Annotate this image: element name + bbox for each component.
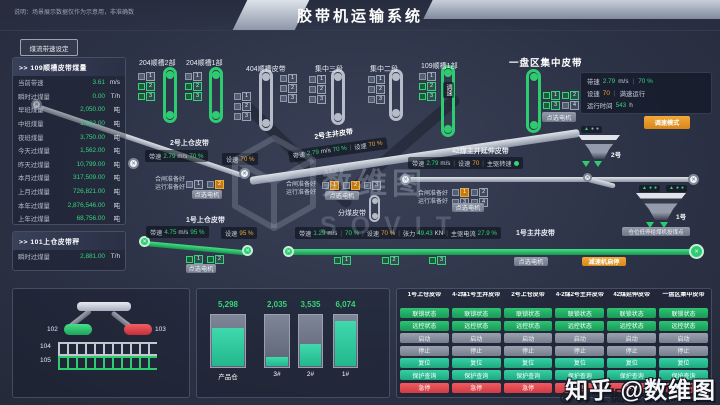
motor-tags: 123 [138, 72, 155, 100]
motor-icon [368, 96, 375, 103]
corner-watermark: 知乎 @数维图 [565, 371, 716, 405]
motor-tags: 123 [185, 72, 202, 100]
conveyor-104-label: 104 [40, 343, 51, 350]
motor-tag: 2 [185, 82, 202, 90]
motor-tag: 2 [207, 180, 224, 188]
speed-regulation-tag: 调速 [443, 82, 454, 98]
level-dot-icon: ● [591, 127, 594, 132]
belt-speed-row: 带速2.79 m/s70 % [587, 77, 705, 86]
row-unit: T/h [105, 93, 120, 100]
pulley-icon [400, 174, 411, 185]
hopper-2-level-indicators: ▲ ● ● [581, 126, 602, 133]
row-value: 68,756.00 [77, 215, 105, 222]
motor-tag-number: 2 [242, 102, 251, 111]
control-column-title: 42煤延伸皮带 [607, 292, 656, 306]
motor-icon [364, 182, 371, 189]
control-button[interactable]: 远控状态 [452, 321, 501, 331]
belt-speed-chip: 带速4.75 m/s95 % [146, 226, 209, 238]
control-button[interactable]: 联锁状态 [400, 308, 449, 318]
control-button[interactable]: 复位 [555, 358, 604, 368]
motor-tags: 12 [186, 180, 224, 188]
control-button[interactable]: 启动 [400, 333, 449, 343]
silo-label: 2# [298, 371, 323, 378]
motor-tag-number: 3 [288, 94, 297, 103]
row-label: 本年过煤量 [18, 201, 50, 210]
control-button[interactable]: 远控状态 [400, 321, 449, 331]
belt-label: 109顺槽1部 [421, 61, 458, 71]
motor-icon [138, 83, 145, 90]
motor-tag-number: 1 [330, 181, 339, 190]
data-row: 上年过煤量68,756.00吨 [13, 212, 125, 226]
control-button[interactable]: 停止 [504, 346, 553, 356]
belt-label: 1号上仓皮带 [186, 215, 225, 225]
conveyor-1-main-line [288, 249, 696, 255]
motor-tags: 123 [280, 74, 297, 102]
motor-tag-number: 1 [194, 180, 203, 189]
level-dot-icon: ● [596, 127, 599, 132]
row-unit: 吨 [105, 146, 120, 155]
conveyor-2-main-group: 2号主井皮带 带速2.79 m/s70 % 设速70 % [286, 122, 388, 163]
belt-label: 42煤主井延伸皮带 [452, 146, 509, 156]
control-button[interactable]: 联锁状态 [659, 308, 708, 318]
chute-103-label: 103 [155, 326, 166, 333]
motor-tag-number: 2 [215, 180, 224, 189]
control-button[interactable]: 启动 [452, 333, 501, 343]
belt-label: 204顺槽1部 [186, 58, 223, 68]
low-level-stop-feeder-button[interactable]: 仓位低停给煤机投煤点 [622, 227, 690, 236]
select-motor-button[interactable]: 点选电机 [514, 257, 548, 266]
row-unit: 吨 [105, 119, 120, 128]
motor-icon [185, 93, 192, 100]
motor-tag-number: 1 [146, 72, 155, 81]
data-row: 昨天过煤量10,799.00吨 [13, 158, 125, 172]
motor-tag-number: 1 [460, 188, 469, 197]
motor-tag-number: 1 [193, 72, 202, 81]
row-unit: 吨 [105, 214, 120, 223]
motor-tag-number: 2 [215, 255, 224, 264]
motor-tag-number: 1 [551, 91, 560, 100]
belt-109-1[interactable] [441, 65, 455, 137]
pulley-icon [688, 174, 699, 185]
control-button[interactable]: 停止 [452, 346, 501, 356]
motor-tag: 2 [471, 188, 488, 196]
control-column: 2号上仓皮带联锁状态远控状态启动停止复位保护查询急停 [504, 292, 553, 394]
motor-icon [334, 257, 341, 264]
splitter-belt-label: 分煤皮带 [338, 208, 366, 218]
motor-tag-number: 1 [242, 92, 251, 101]
motor-tag: 3 [543, 101, 560, 109]
motor-tag: 3 [185, 92, 202, 100]
row-unit: 吨 [105, 173, 120, 182]
motor-tag: 1 [322, 181, 339, 189]
chute-102-status[interactable] [64, 324, 92, 335]
motor-icon [309, 96, 316, 103]
control-button[interactable]: 启动 [659, 333, 708, 343]
motor-icon [186, 181, 193, 188]
control-button[interactable]: 急停 [400, 383, 449, 393]
motor-tag: 3 [419, 92, 436, 100]
motor-tag: 1 [334, 256, 351, 264]
panel-title: >> 101上仓皮带秤 [13, 232, 125, 250]
level-dot-icon: ● [654, 186, 657, 191]
belt-label: 集中三段 [315, 64, 343, 74]
data-row: 中班煤量1,662.00吨 [13, 117, 125, 131]
belt-404[interactable] [259, 69, 273, 131]
control-button[interactable]: 停止 [555, 346, 604, 356]
motor-tags: 1234 [543, 91, 581, 109]
motor-icon [186, 256, 193, 263]
belt-label: 2号上仓皮带 [170, 138, 209, 148]
motor-tag: 2 [419, 82, 436, 90]
control-button[interactable]: 远控状态 [659, 321, 708, 331]
silo-label: 1# [333, 371, 358, 378]
motor-tag: 3 [429, 256, 446, 264]
motor-tag: 3 [234, 112, 251, 120]
silo-fill [212, 328, 244, 366]
control-button[interactable]: 停止 [659, 346, 708, 356]
control-button[interactable]: 启动 [504, 333, 553, 343]
control-button[interactable]: 复位 [607, 358, 656, 368]
motor-icon [382, 257, 389, 264]
belt-label: 1号主井皮带 [516, 228, 555, 238]
select-motor-button[interactable]: 点选电机 [452, 203, 484, 212]
silo-label: 产品仓 [210, 371, 246, 381]
silo-bar [210, 314, 246, 368]
runtime-row: 运行时间543 h [587, 101, 705, 110]
chute-triangle-icon [582, 161, 590, 167]
silo-fill [300, 344, 321, 366]
silo-fill [266, 357, 288, 366]
control-button[interactable]: 急停 [452, 383, 501, 393]
row-label: 夜班煤量 [18, 133, 44, 142]
motor-tag: 3 [364, 181, 381, 189]
motor-icon [343, 182, 350, 189]
motor-tag-number: 1 [342, 256, 351, 265]
motor-tag-number: 1 [288, 74, 297, 83]
distributor-head [77, 302, 131, 311]
motor-tag-number: 3 [551, 101, 560, 110]
select-motor-button[interactable]: 点选电机 [192, 190, 222, 199]
drive-status-dot [514, 161, 519, 166]
row-label: 瞬时过煤量 [18, 92, 50, 101]
motor-tag-number: 2 [570, 91, 579, 100]
silo-bar [333, 314, 358, 368]
motor-tag: 1 [543, 91, 560, 99]
set-speed-chip: 设速95 % [221, 227, 257, 239]
set-speed-row: 设速70 满速运行 [587, 89, 705, 98]
row-value: 2,050.00 [80, 106, 105, 113]
belt-label: 404顺槽皮带 [246, 64, 286, 74]
row-value: 0.00 [93, 93, 105, 100]
motor-icon [207, 181, 214, 188]
motor-icon [368, 86, 375, 93]
motor-icon [309, 86, 316, 93]
motor-tags: 123 [322, 181, 381, 189]
conveyor-105-label: 105 [40, 357, 51, 364]
motor-tags: 123 [309, 75, 326, 103]
motor-icon [280, 75, 287, 82]
silo-value: 5,298 [210, 300, 246, 309]
motor-icon [419, 83, 426, 90]
level-triangle-icon: ▲ [584, 127, 589, 132]
row-label: 上月过煤量 [18, 187, 50, 196]
motor-tag-number: 2 [288, 84, 297, 93]
motor-tag: 2 [368, 85, 385, 93]
motor-icon [207, 256, 214, 263]
control-button[interactable]: 联锁状态 [555, 308, 604, 318]
motor-tag: 4 [562, 101, 579, 109]
motor-icon [562, 92, 569, 99]
motor-icon [185, 83, 192, 90]
panel-title: >> 109顺槽皮带煤量 [13, 58, 125, 76]
pulley-icon [689, 244, 704, 259]
row-unit: 吨 [105, 201, 120, 210]
motor-tag-number: 1 [376, 75, 385, 84]
chute-102-label: 102 [47, 326, 58, 333]
chute-triangle-icon [594, 161, 602, 167]
motor-tag: 1 [419, 72, 436, 80]
motor-tag-number: 2 [193, 82, 202, 91]
motor-tag-number: 2 [479, 188, 488, 197]
gearbox-start-stop-button[interactable]: 减速机启停 [582, 257, 626, 266]
control-button[interactable]: 保护查询 [452, 370, 501, 380]
conveyor-105[interactable] [58, 356, 157, 370]
pan-belt-info-panel: 带速2.79 m/s70 % 设速70 满速运行 运行时间543 h [580, 72, 712, 114]
motor-icon [234, 93, 241, 100]
silo-bar [264, 314, 290, 368]
motor-icon [234, 113, 241, 120]
pulley-icon [242, 245, 253, 256]
control-column-title: 一盘区集中皮带 [659, 292, 708, 306]
hopper-2-label: 2号 [611, 149, 621, 159]
motor-tag-number: 1 [194, 255, 203, 264]
motor-tag-number: 2 [376, 85, 385, 94]
row-value: 317,509.00 [73, 174, 105, 181]
data-row: 早班煤量2,050.00吨 [13, 103, 125, 117]
row-value: 726,821.00 [73, 188, 105, 195]
motor-icon [322, 182, 329, 189]
motor-tag: 2 [562, 91, 579, 99]
motor-tag: 2 [138, 82, 155, 90]
motor-tag-number: 2 [390, 256, 399, 265]
data-row: 夜班煤量3,750.00吨 [13, 130, 125, 144]
belt-label: 204顺槽2部 [139, 58, 176, 68]
row-label: 上年过煤量 [18, 214, 50, 223]
silo-bar [298, 314, 323, 368]
control-button[interactable]: 复位 [504, 358, 553, 368]
select-motor-button[interactable]: 点选电机 [325, 191, 359, 200]
motor-tags: 12 [186, 255, 224, 263]
control-button[interactable]: 停止 [400, 346, 449, 356]
motor-tags: 123 [334, 256, 446, 264]
pan-belt-title: 一盘区集中皮带 [509, 55, 583, 69]
motor-icon [562, 102, 569, 109]
control-button[interactable]: 停止 [607, 346, 656, 356]
motor-icon [419, 73, 426, 80]
motor-icon [368, 76, 375, 83]
motor-tag-number: 3 [242, 112, 251, 121]
panel-rows: 当前带速3.61m/s瞬时过煤量0.00T/h早班煤量2,050.00吨中班煤量… [13, 76, 125, 226]
belt-label: 集中二段 [370, 64, 398, 74]
motor-tag: 1 [138, 72, 155, 80]
ready-text: 运行准备好 [286, 187, 316, 196]
motor-tag: 2 [382, 256, 399, 264]
control-button[interactable]: 远控状态 [607, 321, 656, 331]
silo-label: 3# [264, 371, 290, 378]
belt-204-1[interactable] [209, 67, 223, 123]
conveyor-1-upper-line [145, 241, 249, 256]
motor-tag: 1 [368, 75, 385, 83]
control-button[interactable]: 联锁状态 [607, 308, 656, 318]
control-button[interactable]: 复位 [659, 358, 708, 368]
header-bar: 说明：场景展示数据仅作为示意用，非准确数 胶带机运输系统 [0, 0, 720, 31]
motor-icon [419, 93, 426, 100]
level-dot-icon: ● [681, 186, 684, 191]
row-label: 昨天过煤量 [18, 160, 50, 169]
motor-icon [280, 85, 287, 92]
motor-tag: 2 [280, 84, 297, 92]
ready-text: 运行准备好 [418, 196, 448, 205]
row-label: 瞬时过煤量 [18, 252, 50, 261]
select-motor-button[interactable]: 点选电机 [542, 112, 576, 122]
control-button[interactable]: 保护查询 [400, 370, 449, 380]
control-button[interactable]: 联锁状态 [504, 308, 553, 318]
data-row: 本月过煤量317,509.00吨 [13, 171, 125, 185]
pulley-icon [583, 173, 592, 182]
row-value: 10,799.00 [77, 161, 105, 168]
motor-tag: 2 [309, 85, 326, 93]
motor-tag: 3 [138, 92, 155, 100]
hopper-1-label: 1号 [676, 211, 686, 221]
motor-tag-number: 1 [317, 75, 326, 84]
set-speed-chip: 设速70 % [222, 153, 258, 165]
motor-tags: 123 [368, 75, 385, 103]
control-button[interactable]: 急停 [504, 383, 553, 393]
select-motor-button[interactable]: 点选电机 [186, 264, 216, 273]
data-row: 当前带速3.61m/s [13, 76, 125, 90]
belt-central-3[interactable] [331, 69, 345, 125]
conveyor-42-line [406, 177, 696, 182]
silo-value: 6,074 [333, 300, 358, 309]
motor-tag-number: 3 [317, 95, 326, 104]
conveyor-104[interactable] [58, 342, 157, 356]
row-value: 1,562.00 [80, 147, 105, 154]
motor-tag: 1 [186, 255, 203, 263]
splitter-belt[interactable] [369, 195, 380, 222]
control-column-title: 4-2煤1号主井皮带 [452, 292, 501, 306]
motor-tag-number: 2 [146, 82, 155, 91]
motor-tag-number: 3 [427, 92, 436, 101]
pulley-icon [283, 246, 294, 257]
row-value: 2,881.00 [80, 253, 105, 260]
ready-text: 运行准备好 [155, 182, 185, 191]
data-row: 本年过煤量2,876,546.00吨 [13, 198, 125, 212]
silo-value: 3,535 [298, 300, 323, 309]
row-value: 2,876,546.00 [68, 202, 105, 209]
speed-mode-button[interactable]: 调速模式 [644, 116, 690, 129]
motor-tag-number: 2 [351, 181, 360, 190]
motor-tag: 1 [234, 92, 251, 100]
motor-tag-number: 3 [193, 92, 202, 101]
control-button[interactable]: 联锁状态 [452, 308, 501, 318]
belt-speed-chip: 带速1.29 m/s70 % 设速70 % 张力49.43 KN 主驱电流27.… [295, 227, 501, 239]
motor-icon [543, 92, 550, 99]
motor-icon [429, 257, 436, 264]
motor-tag: 1 [309, 75, 326, 83]
motor-tag: 2 [234, 102, 251, 110]
motor-tag-number: 3 [372, 181, 381, 190]
coal-flow-speed-setting-button[interactable]: 煤流带速设定 [20, 39, 78, 56]
control-button[interactable]: 保护查询 [504, 370, 553, 380]
row-label: 今天过煤量 [18, 146, 50, 155]
row-unit: m/s [105, 79, 120, 86]
motor-tag-number: 1 [427, 72, 436, 81]
motor-icon [471, 189, 478, 196]
control-button[interactable]: 启动 [555, 333, 604, 343]
silo-value: 2,035 [264, 300, 290, 309]
scada-dashboard: 说明：场景展示数据仅作为示意用，非准确数 胶带机运输系统 煤流带速设定 >> 1… [0, 0, 720, 405]
motor-icon [138, 93, 145, 100]
chute-103-status[interactable] [124, 324, 152, 335]
control-button[interactable]: 复位 [452, 358, 501, 368]
page-title: 胶带机运输系统 [0, 5, 720, 26]
motor-tags: 123 [419, 72, 436, 100]
motor-icon [309, 76, 316, 83]
motor-tag: 3 [309, 95, 326, 103]
data-row: 今天过煤量1,562.00吨 [13, 144, 125, 158]
level-dot-icon: ● [676, 186, 679, 191]
control-button[interactable]: 远控状态 [555, 321, 604, 331]
control-column: 4-2煤1号主井皮带联锁状态远控状态启动停止复位保护查询急停 [452, 292, 501, 394]
motor-tag: 3 [368, 95, 385, 103]
row-label: 当前带速 [18, 78, 44, 87]
control-column-title: 2号上仓皮带 [504, 292, 553, 306]
motor-tag-number: 3 [437, 256, 446, 265]
row-value: 1,662.00 [80, 120, 105, 127]
motor-tag-number: 4 [570, 101, 579, 110]
hopper-1-level-indicators: ▲ ● ● [666, 185, 687, 192]
level-triangle-icon: ▲ [642, 186, 647, 191]
motor-icon [543, 102, 550, 109]
control-button[interactable]: 远控状态 [504, 321, 553, 331]
belt-central-2[interactable] [389, 69, 403, 121]
motor-tag: 1 [452, 188, 469, 196]
motor-tag-number: 2 [317, 85, 326, 94]
motor-tag-number: 2 [427, 82, 436, 91]
level-triangle-icon: ▲ [669, 186, 674, 191]
belt-109-coal-panel: >> 109顺槽皮带煤量 当前带速3.61m/s瞬时过煤量0.00T/h早班煤量… [12, 57, 126, 225]
pan-district-belt[interactable] [526, 69, 541, 133]
belt-speed-chip: 带速2.79 m/s 设速70 主驱转速 [408, 157, 523, 169]
hopper-1-level-indicators: ▲ ● ● [639, 185, 660, 192]
belt-101-scale-panel: >> 101上仓皮带秤 瞬时过煤量2,881.00T/h [12, 231, 126, 271]
motor-tag: 2 [343, 181, 360, 189]
control-button[interactable]: 启动 [607, 333, 656, 343]
data-row: 上月过煤量726,821.00吨 [13, 185, 125, 199]
row-label: 本月过煤量 [18, 173, 50, 182]
silo-fill [335, 321, 356, 366]
row-unit: 吨 [105, 187, 120, 196]
motor-icon [234, 103, 241, 110]
motor-tag-number: 3 [376, 95, 385, 104]
control-column: 1号上仓皮带联锁状态远控状态启动停止复位保护查询急停 [400, 292, 449, 394]
control-column-title: 1号上仓皮带 [400, 292, 449, 306]
belt-204-2[interactable] [163, 67, 177, 123]
motor-tag-number: 3 [146, 92, 155, 101]
motor-tag: 1 [185, 72, 202, 80]
row-unit: 吨 [105, 160, 120, 169]
control-button[interactable]: 复位 [400, 358, 449, 368]
